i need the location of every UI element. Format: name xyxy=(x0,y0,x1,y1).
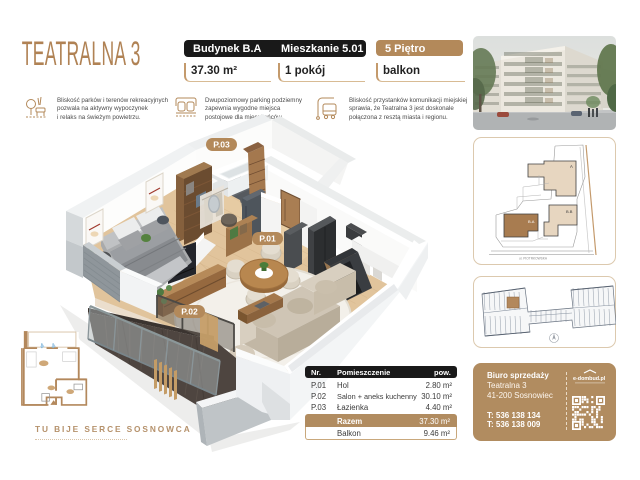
svg-text:ul. PIOTRKOWSKA: ul. PIOTRKOWSKA xyxy=(519,257,548,261)
svg-text:P.03: P.03 xyxy=(213,140,230,150)
svg-text:A: A xyxy=(570,164,573,169)
svg-text:P.02: P.02 xyxy=(181,307,198,317)
svg-text:e-dombud.pl: e-dombud.pl xyxy=(573,376,606,382)
svg-text:B.B: B.B xyxy=(566,209,573,214)
svg-text:P.01: P.01 xyxy=(259,234,276,244)
svg-text:B.A: B.A xyxy=(528,219,535,224)
